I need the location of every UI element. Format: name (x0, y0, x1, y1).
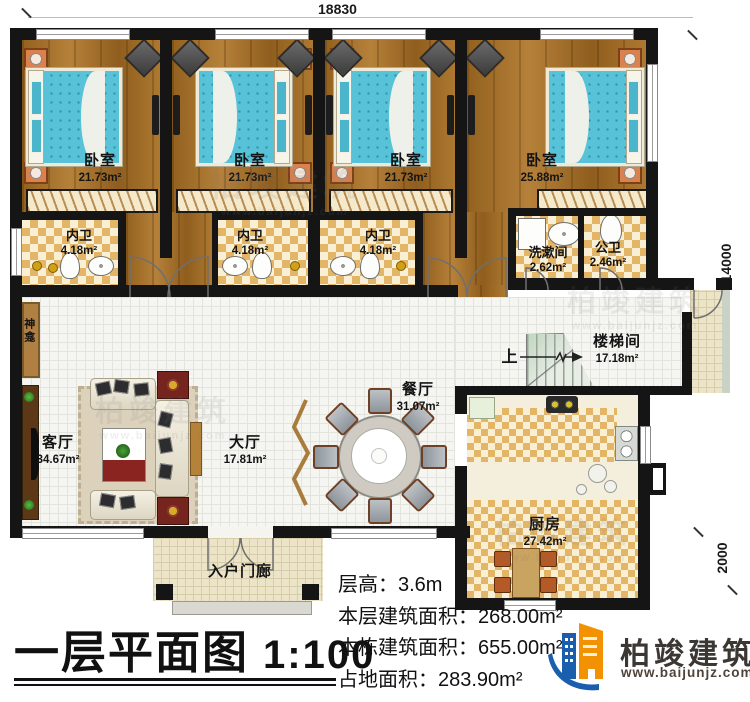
pot-icon (604, 480, 617, 493)
window-bedroom4 (540, 29, 634, 40)
wall-tv-icon (468, 95, 475, 135)
side-table (157, 497, 189, 525)
closet-bedroom2 (176, 189, 311, 213)
dimension-line-top (28, 17, 693, 18)
room-label-dining-room: 餐厅 31.07m² (373, 381, 463, 414)
room-label-bedroom4: 卧室 25.88m² (497, 152, 587, 185)
title-text: 一层平面图 (14, 627, 249, 678)
room-area: 27.42m² (500, 535, 590, 549)
bed-pillow (276, 81, 287, 115)
stairs-up-label: 上 (500, 348, 520, 368)
info-value: 283.90m² (438, 669, 523, 691)
pot-icon (588, 464, 607, 483)
dining-chair (421, 445, 447, 469)
room-label-bedroom2: 卧室 21.73m² (205, 152, 295, 185)
kitchen-chair (540, 551, 557, 567)
info-value: 3.6m (398, 574, 442, 596)
dimension-tick (693, 527, 704, 538)
closet-bedroom3 (329, 189, 453, 213)
side-table (157, 371, 189, 399)
room-name: 厨房 (500, 516, 590, 535)
wall-tv-icon (173, 95, 180, 135)
porch-column-left (156, 584, 173, 600)
sink-icon (222, 256, 248, 276)
wall-stub-br1 (160, 212, 172, 258)
room-label-public-wc: 公卫 2.46m² (572, 240, 644, 271)
bed-pillow (628, 119, 639, 153)
sink-icon (330, 256, 356, 276)
room-label-living-room: 客厅 34.67m² (13, 434, 103, 467)
room-name: 餐厅 (373, 381, 463, 400)
porch-column-right (302, 584, 319, 600)
closet-bedroom1 (26, 189, 158, 213)
porch-steps (172, 601, 312, 615)
drain-icon (396, 261, 406, 271)
side-porch-floor (690, 283, 722, 393)
wall-br2-br3 (313, 40, 325, 212)
wall-tv-icon (326, 95, 333, 135)
pot-icon (576, 484, 587, 495)
window-hall-south (331, 528, 437, 539)
room-area: 21.73m² (205, 171, 295, 185)
room-area: 25.88m² (497, 171, 587, 185)
dimension-tick (727, 585, 738, 596)
bed-pillow (628, 81, 639, 115)
sofa-pillow (133, 382, 149, 396)
bed-blanket-fold (213, 71, 237, 163)
sofa-pillow (113, 379, 130, 394)
room-label-stairwell: 楼梯间 17.18m² (572, 333, 662, 366)
room-area: 34.67m² (13, 453, 103, 467)
plant-icon (24, 392, 34, 402)
sofa-pillow (158, 437, 173, 454)
wall-band-bottom (22, 285, 458, 297)
room-label-ensuite3: 内卫 4.18m² (338, 228, 418, 259)
bed-blanket-fold (81, 71, 105, 163)
logo-building-icon (548, 615, 614, 691)
sink-icon (88, 256, 114, 276)
window-bedroom2 (215, 29, 309, 40)
room-label-hall: 大厅 17.81m² (200, 434, 290, 467)
drain-icon (290, 261, 300, 271)
side-porch-step (722, 283, 730, 393)
room-name: 卧室 (497, 152, 587, 171)
room-area: 21.73m² (55, 171, 145, 185)
sofa-pillow (99, 493, 116, 508)
window-kitchen-east (640, 426, 651, 464)
room-label-shrine: 神龛 (21, 318, 37, 344)
window-bedroom1 (36, 29, 130, 40)
title-scale: 1:100 (263, 633, 375, 677)
window-living-south (22, 528, 144, 539)
wall-tv-icon (447, 95, 454, 135)
wall-br1-br2 (160, 40, 172, 212)
info-row: 层高：3.6m (338, 570, 563, 602)
kitchen-chimney-inner (653, 468, 663, 490)
room-label-bedroom1: 卧室 21.73m² (55, 152, 145, 185)
bed-pillow (31, 81, 42, 115)
room-label-bedroom3: 卧室 21.73m² (361, 152, 451, 185)
room-area: 4.18m² (210, 244, 290, 258)
sofa-pillow (119, 495, 136, 510)
kitchen-sink-icon (615, 426, 638, 461)
info-label: 层高： (338, 574, 398, 596)
drain-icon (48, 263, 58, 273)
window-bedroom4-east (647, 64, 658, 162)
dimension-right-lower: 2000 (714, 530, 730, 586)
room-name: 卧室 (361, 152, 451, 171)
room-name: 楼梯间 (572, 333, 662, 352)
title-underline2 (14, 684, 336, 686)
dining-table-center (371, 448, 387, 464)
title-underline (14, 678, 336, 681)
room-name: 公卫 (572, 240, 644, 256)
dimension-tick (21, 8, 32, 19)
wall-ensuite2-top (218, 212, 308, 220)
bed-pillow (31, 119, 42, 153)
room-area: 4.18m² (338, 244, 418, 258)
wall-tv-icon (305, 95, 312, 135)
drawing-title: 一层平面图1:100 (14, 616, 375, 681)
room-name: 卧室 (205, 152, 295, 171)
bed-pillow (339, 81, 350, 115)
nightstand (618, 48, 642, 70)
room-area: 21.73m² (361, 171, 451, 185)
room-label-ensuite1: 内卫 4.18m² (39, 228, 119, 259)
wall-ensuite1-top (22, 212, 118, 220)
up-text: 上 (500, 348, 520, 368)
wall-tv-icon (152, 95, 159, 135)
room-name: 大厅 (200, 434, 290, 453)
room-name: 神龛 (21, 318, 35, 344)
room-label-entry-porch: 入户门廊 (195, 563, 285, 582)
dimension-top: 18830 (318, 1, 357, 17)
room-name: 内卫 (39, 228, 119, 244)
room-label-kitchen: 厨房 27.42m² (500, 516, 590, 549)
drain-icon (32, 261, 42, 271)
wall-stub-br3 (455, 212, 467, 258)
room-area: 17.81m² (200, 453, 290, 467)
room-area: 2.46m² (572, 256, 644, 270)
bed-pillow (276, 119, 287, 153)
room-name: 入户门廊 (195, 563, 285, 582)
door-gap-side-porch (694, 278, 716, 290)
room-area: 31.07m² (373, 400, 463, 414)
window-bedroom3 (332, 29, 426, 40)
bed-blanket-fold (389, 71, 413, 163)
wall-kitchen-top (455, 386, 692, 395)
dining-chair (368, 498, 392, 524)
bed-blanket-fold (565, 71, 589, 163)
sofa-pillow (158, 463, 173, 480)
brand-url: www.baijunjz.com (621, 665, 750, 680)
plant-icon (116, 444, 130, 458)
floor-plan: 卧室 21.73m² 卧室 21.73m² 卧室 21.73m² 卧室 25.8… (0, 0, 750, 702)
stove-icon (546, 396, 578, 413)
entry-door-opening (208, 526, 273, 538)
fridge-icon (469, 397, 495, 419)
wall-stairwell-right (682, 312, 692, 395)
room-area: 17.18m² (572, 352, 662, 366)
room-name: 客厅 (13, 434, 103, 453)
dimension-tick (687, 30, 698, 41)
nightstand (24, 48, 48, 70)
window-ensuite1-west (11, 228, 22, 276)
wall-ensuite3-top (320, 212, 415, 220)
plant-icon (24, 500, 34, 510)
dining-chair (313, 445, 339, 469)
kitchen-chair (494, 551, 511, 567)
wall-br3-br4 (455, 40, 467, 212)
bed-pillow (339, 119, 350, 153)
room-label-ensuite2: 内卫 4.18m² (210, 228, 290, 259)
room-name: 内卫 (210, 228, 290, 244)
room-area: 4.18m² (39, 244, 119, 258)
dimension-right-upper: 14000 (718, 227, 734, 299)
room-name: 内卫 (338, 228, 418, 244)
room-name: 卧室 (55, 152, 145, 171)
